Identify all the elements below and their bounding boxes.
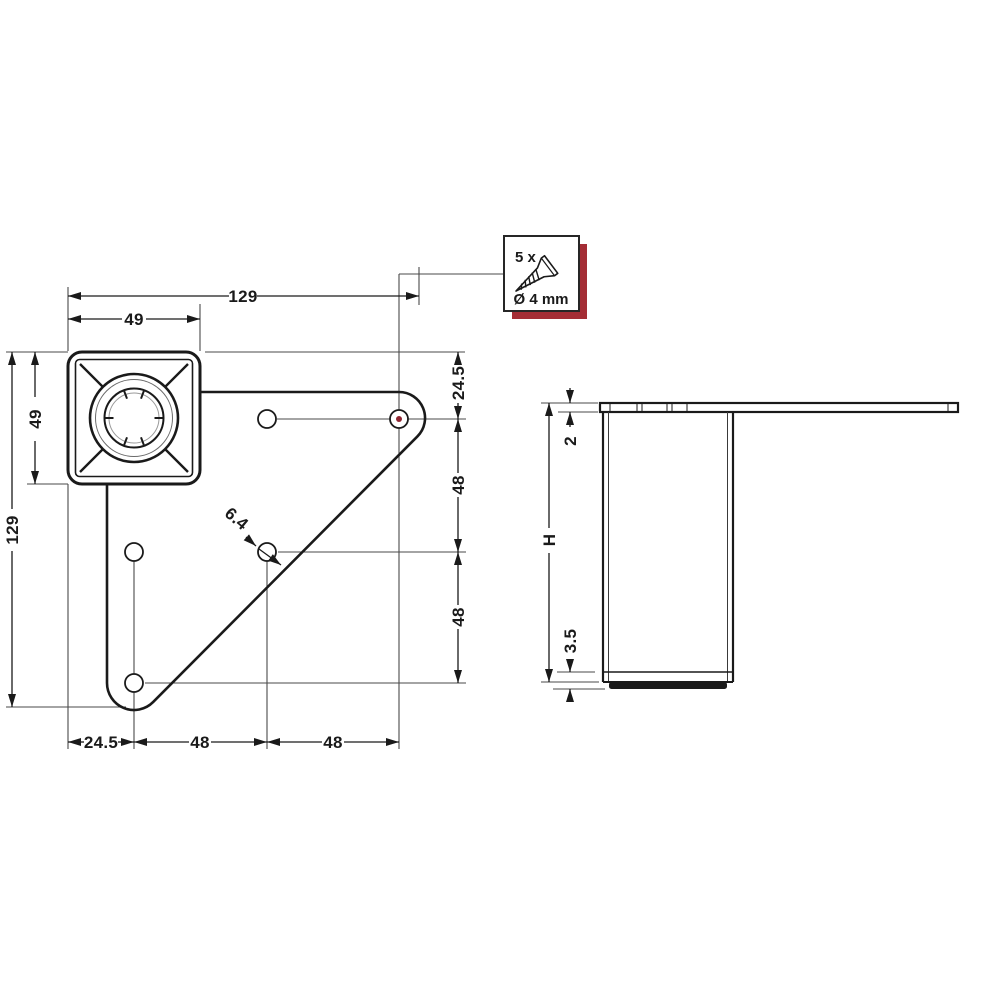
screw-hole — [258, 543, 276, 561]
screw-quantity-label: 5 x — [515, 249, 537, 266]
dim-plate-thickness-label: 2 — [561, 436, 580, 446]
dim-hole-diameter-label: 6.4 — [221, 504, 252, 534]
furniture-leg-dimension-drawing: 129 49 129 49 24.5 — [0, 0, 1000, 1000]
dim-total-width-label: 129 — [228, 287, 257, 306]
leg-socket — [68, 352, 200, 484]
top-view — [6, 267, 504, 749]
screw-hole — [125, 674, 143, 692]
dim-right-chain: 24.5 48 48 — [449, 352, 468, 683]
dim-socket-width-label: 49 — [124, 310, 144, 329]
side-view: 2 H 3.5 — [540, 388, 958, 701]
dim-foot-height-label: 3.5 — [561, 629, 580, 654]
dim-socket-width: 49 — [68, 310, 200, 329]
foot-pad — [609, 682, 727, 689]
dim-total-height-label: 129 — [3, 515, 22, 544]
dim-bottom-chain-right-label: 48 — [323, 733, 343, 752]
leg-tube-inner-walls — [609, 412, 728, 682]
screw-diameter-label: Ø 4 mm — [513, 291, 568, 308]
screw-hole — [258, 410, 276, 428]
dim-overall-height: H — [540, 403, 559, 682]
dim-total-width: 129 — [68, 287, 419, 306]
screw-callout: 5 x Ø 4 mm — [504, 236, 587, 319]
dim-bottom-chain: 24.5 48 48 — [68, 733, 399, 752]
dim-socket-height-label: 49 — [26, 409, 45, 429]
dim-right-chain-top-label: 24.5 — [449, 366, 468, 400]
dim-bottom-chain-mid-label: 48 — [190, 733, 210, 752]
technical-drawing-page: 129 49 129 49 24.5 — [0, 0, 1000, 1000]
side-view-dimensions: 2 H 3.5 — [540, 388, 580, 701]
dim-foot-height: 3.5 — [561, 629, 580, 701]
dim-bottom-chain-left-label: 24.5 — [84, 733, 118, 752]
dim-socket-height: 49 — [26, 352, 45, 484]
extension-lines — [6, 267, 504, 749]
dim-right-chain-bottom-label: 48 — [449, 607, 468, 627]
leg-tube-outline — [603, 412, 733, 682]
dim-right-chain-mid-label: 48 — [449, 475, 468, 495]
screw-position-marker-dot — [396, 416, 402, 422]
dim-plate-thickness: 2 — [561, 388, 580, 446]
dim-overall-height-label: H — [540, 534, 559, 547]
mounting-plate-profile — [600, 403, 958, 412]
dim-total-height: 129 — [3, 352, 22, 707]
screw-hole — [125, 543, 143, 561]
